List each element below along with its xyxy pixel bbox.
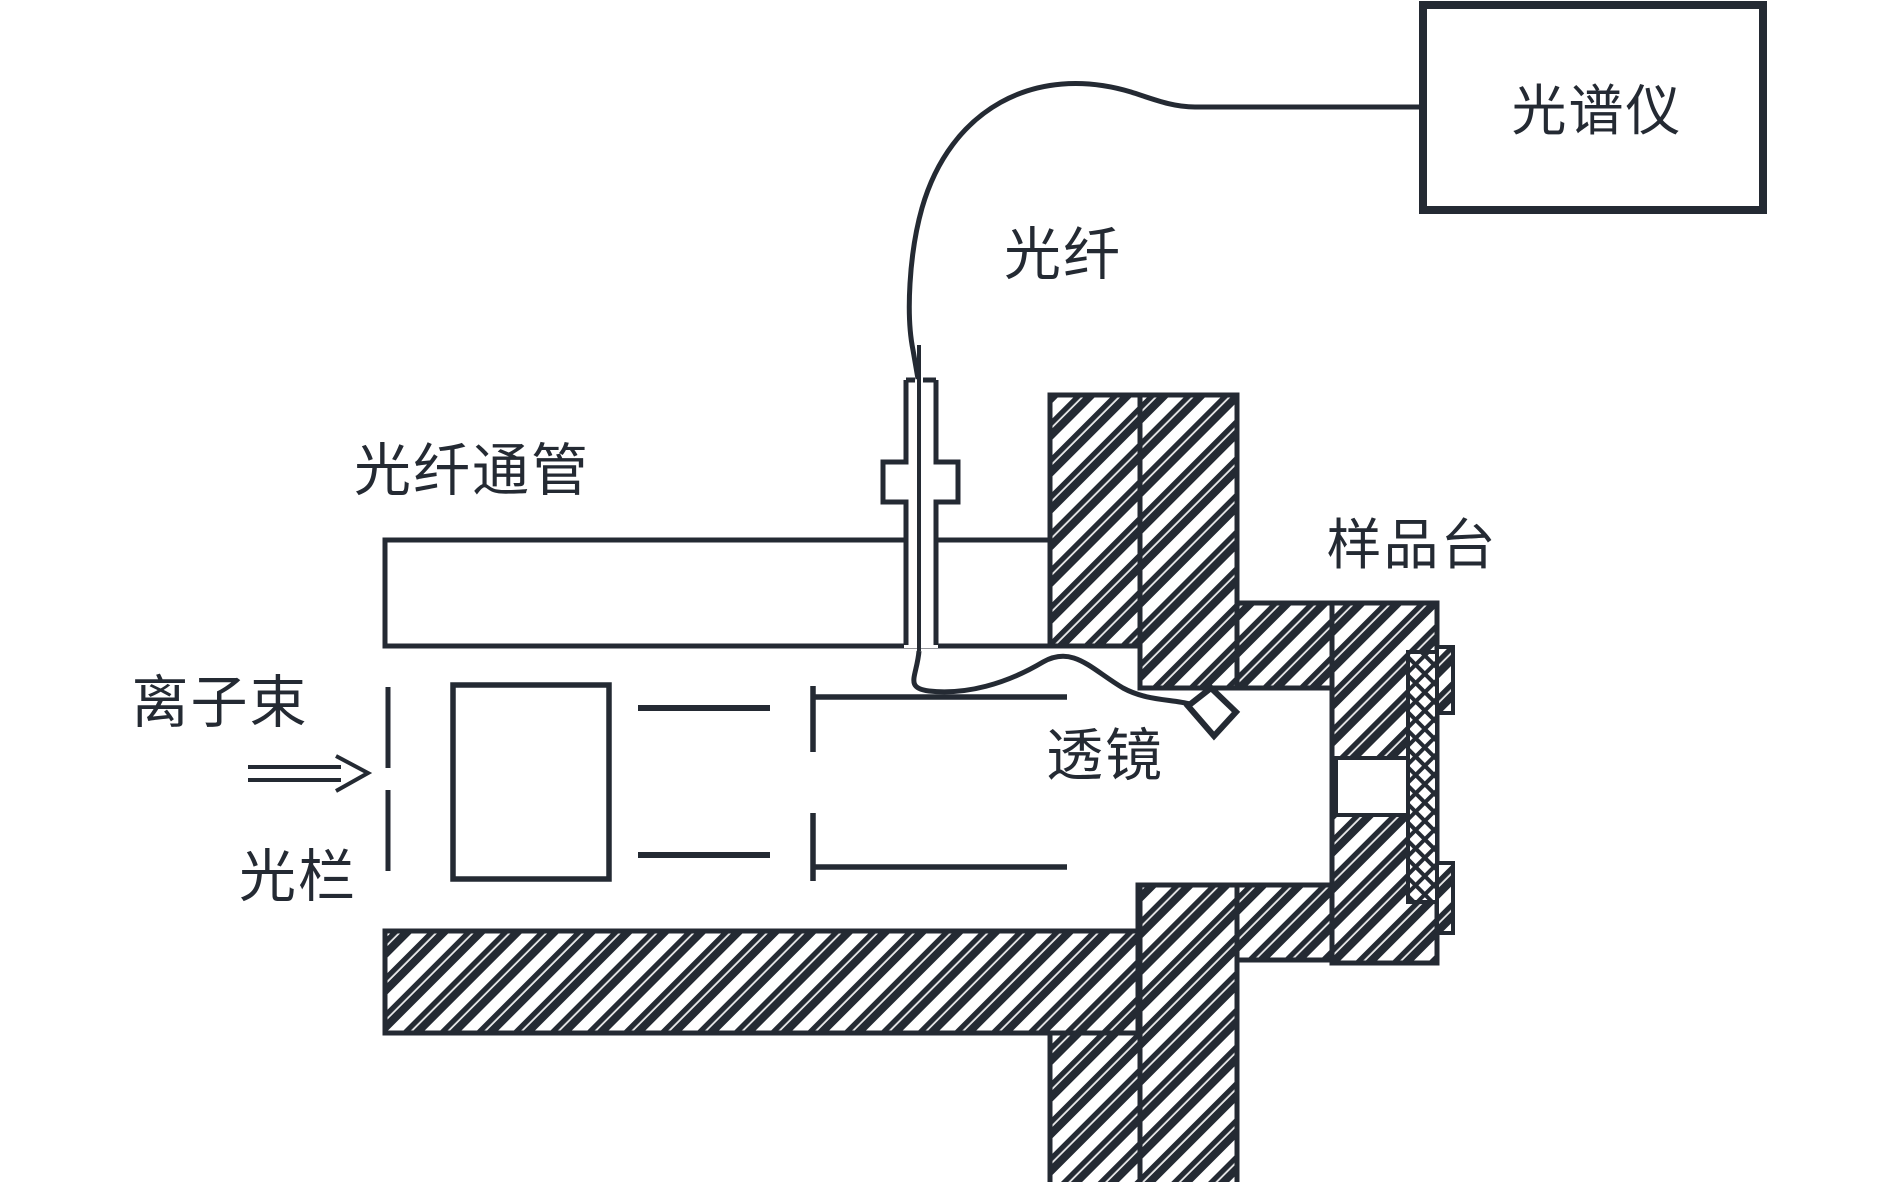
fiber-tube-bottom-wall xyxy=(385,931,1138,1033)
top-column-right xyxy=(1140,395,1237,688)
fiber-tube-label: 光纤通管 xyxy=(354,440,590,503)
electrode-box xyxy=(453,685,609,879)
fiber-tube-top-wall xyxy=(385,540,1140,646)
bottom-column-right xyxy=(1140,885,1237,1182)
lens-label: 透镜 xyxy=(1046,725,1164,788)
fiber-cable-upper xyxy=(909,84,1423,379)
stage-tab-top xyxy=(1437,647,1453,713)
spectrometer-label: 光谱仪 xyxy=(1511,81,1682,142)
top-column-left xyxy=(1050,395,1140,646)
mid-electrode-plates xyxy=(638,708,770,855)
sample-recess xyxy=(1336,758,1408,815)
aperture-label: 光栏 xyxy=(239,846,357,909)
ion-beam-label: 离子束 xyxy=(132,672,309,735)
optical-fiber-label: 光纤 xyxy=(1004,224,1122,287)
lens-electrode xyxy=(811,686,1067,881)
sample-holder-strip xyxy=(1408,652,1437,902)
bottom-column-left xyxy=(1050,1033,1140,1182)
ion-beam-arrow xyxy=(248,756,368,791)
stage-tab-bottom xyxy=(1437,863,1453,933)
diagram-canvas: 光谱仪 光纤 光纤通管 样品台 离子束 光栏 透镜 xyxy=(0,0,1890,1182)
diagram-page: 光谱仪 光纤 光纤通管 样品台 离子束 光栏 透镜 xyxy=(0,0,1890,1182)
stage-arm xyxy=(1237,603,1340,688)
sample-stage-label: 样品台 xyxy=(1326,515,1497,576)
fiber-ferrule xyxy=(1188,688,1236,736)
